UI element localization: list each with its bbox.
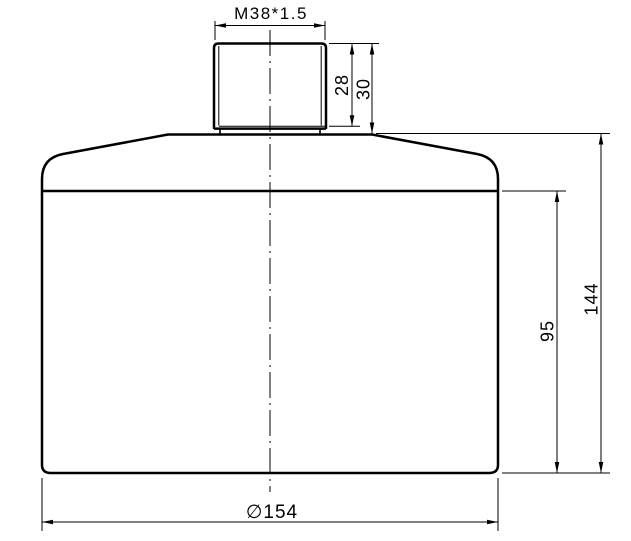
dimension-body-total-height: 144	[376, 134, 610, 474]
arrowhead-left	[215, 23, 226, 28]
arrowhead-right	[314, 23, 325, 28]
technical-drawing-canvas: M38*1.5 28 30 95	[0, 0, 631, 541]
dim-label-body-diameter: ∅154	[246, 502, 298, 523]
arrowhead-up	[350, 44, 355, 55]
arrowhead-down	[370, 123, 375, 134]
dim-label-neck-height: 30	[354, 78, 374, 100]
engineering-drawing-svg: M38*1.5 28 30 95	[0, 0, 631, 541]
arrowhead-down	[599, 462, 604, 473]
dim-label-body-lower-height: 95	[538, 320, 558, 342]
dim-label-body-total-height: 144	[582, 282, 602, 315]
dimension-body-diameter: ∅154	[42, 478, 498, 531]
dim-label-thread-length: 28	[332, 74, 352, 96]
dim-label-thread-spec: M38*1.5	[234, 4, 308, 23]
arrowhead-up	[599, 134, 604, 145]
arrowhead-down	[555, 462, 560, 473]
arrowhead-down	[350, 115, 355, 126]
dimension-body-lower-height: 95	[502, 191, 566, 473]
arrowhead-up	[370, 44, 375, 55]
arrowhead-left	[42, 520, 53, 525]
arrowhead-right	[487, 520, 498, 525]
arrowhead-up	[555, 191, 560, 202]
dimension-neck-height: 30	[354, 44, 375, 134]
part-outline-group	[42, 30, 498, 492]
